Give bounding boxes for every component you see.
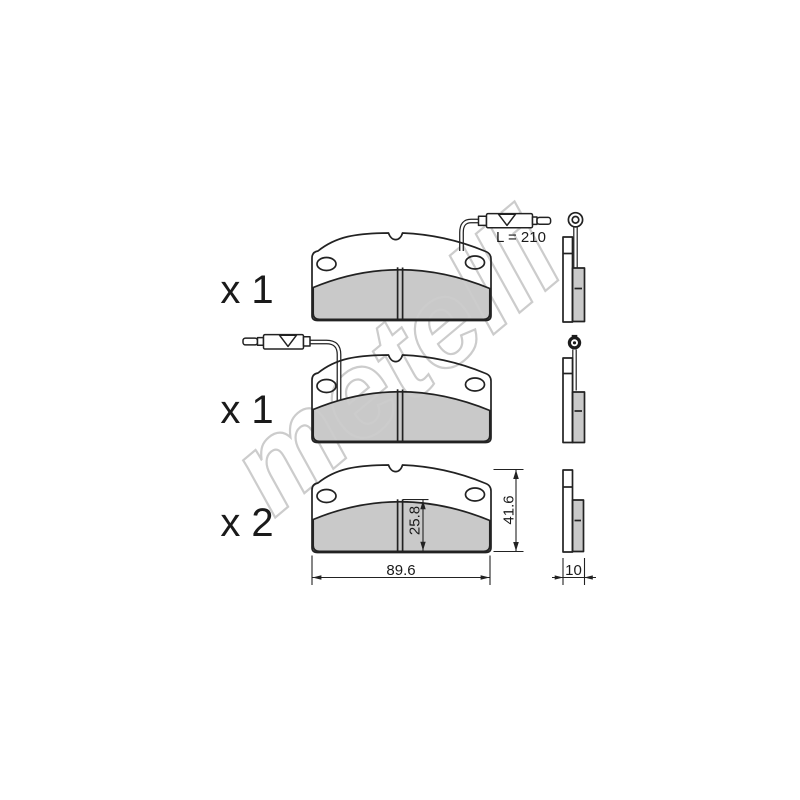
brake-pad-drawing: metelli — [0, 0, 800, 800]
quantity-label-pad-1: x 1 — [220, 268, 273, 312]
wear-sensor-connector-right — [479, 214, 551, 228]
eyelet-terminal — [568, 335, 581, 350]
ring-terminal — [568, 213, 582, 227]
quantity-label-pad-2: x 1 — [220, 388, 273, 432]
side-view-3-friction-fill — [573, 500, 584, 552]
side-view-2-friction-fill — [573, 392, 585, 443]
technical-drawing-page: metelli — [0, 0, 800, 800]
quantity-label-pad-3: x 2 — [220, 501, 273, 545]
friction-height-label: 25.8 — [407, 506, 424, 535]
wire-length-label: L = 210 — [496, 229, 546, 246]
pad-height-label: 41.6 — [501, 495, 518, 524]
pad-thickness-label: 10 — [565, 562, 582, 579]
wear-sensor-connector-left — [243, 335, 310, 349]
pad-width-label: 89.6 — [386, 562, 415, 579]
